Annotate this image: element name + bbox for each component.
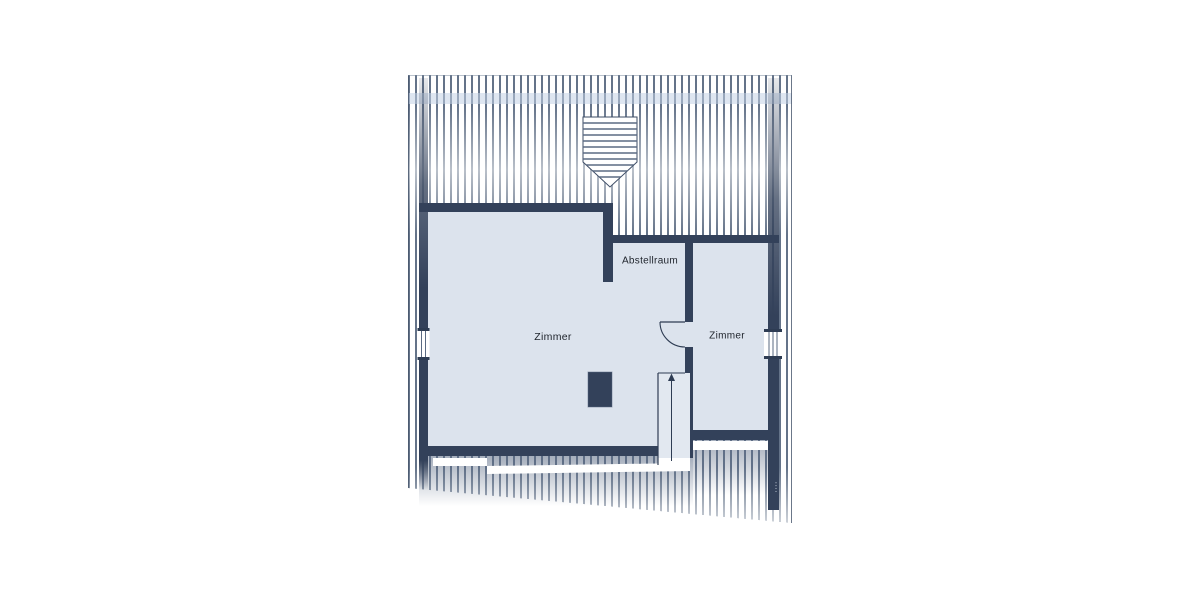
attic-floorplan: Zimmer Abstellraum Zimmer •••• xyxy=(408,75,792,525)
right-outer-wall xyxy=(768,78,779,510)
zimmer-bottom-wall xyxy=(419,446,658,456)
floorplan-drawing xyxy=(408,75,792,525)
zimmer-top-wall xyxy=(419,203,613,212)
chimney-block xyxy=(588,372,612,407)
room-label-zimmer-left: Zimmer xyxy=(534,331,571,343)
right-window xyxy=(764,329,782,359)
staircase xyxy=(658,373,690,465)
zimmer-right-bottom-wall xyxy=(685,430,779,440)
floorplan-canvas: Zimmer Abstellraum Zimmer •••• xyxy=(0,0,1200,600)
middle-wall-upper xyxy=(685,235,693,322)
roof-ridge-band xyxy=(408,93,792,104)
room-label-abstellraum: Abstellraum xyxy=(622,256,678,267)
room-label-zimmer-right: Zimmer xyxy=(709,331,745,342)
left-outer-wall xyxy=(419,78,428,460)
watermark: •••• xyxy=(769,471,779,505)
left-window xyxy=(418,328,430,360)
